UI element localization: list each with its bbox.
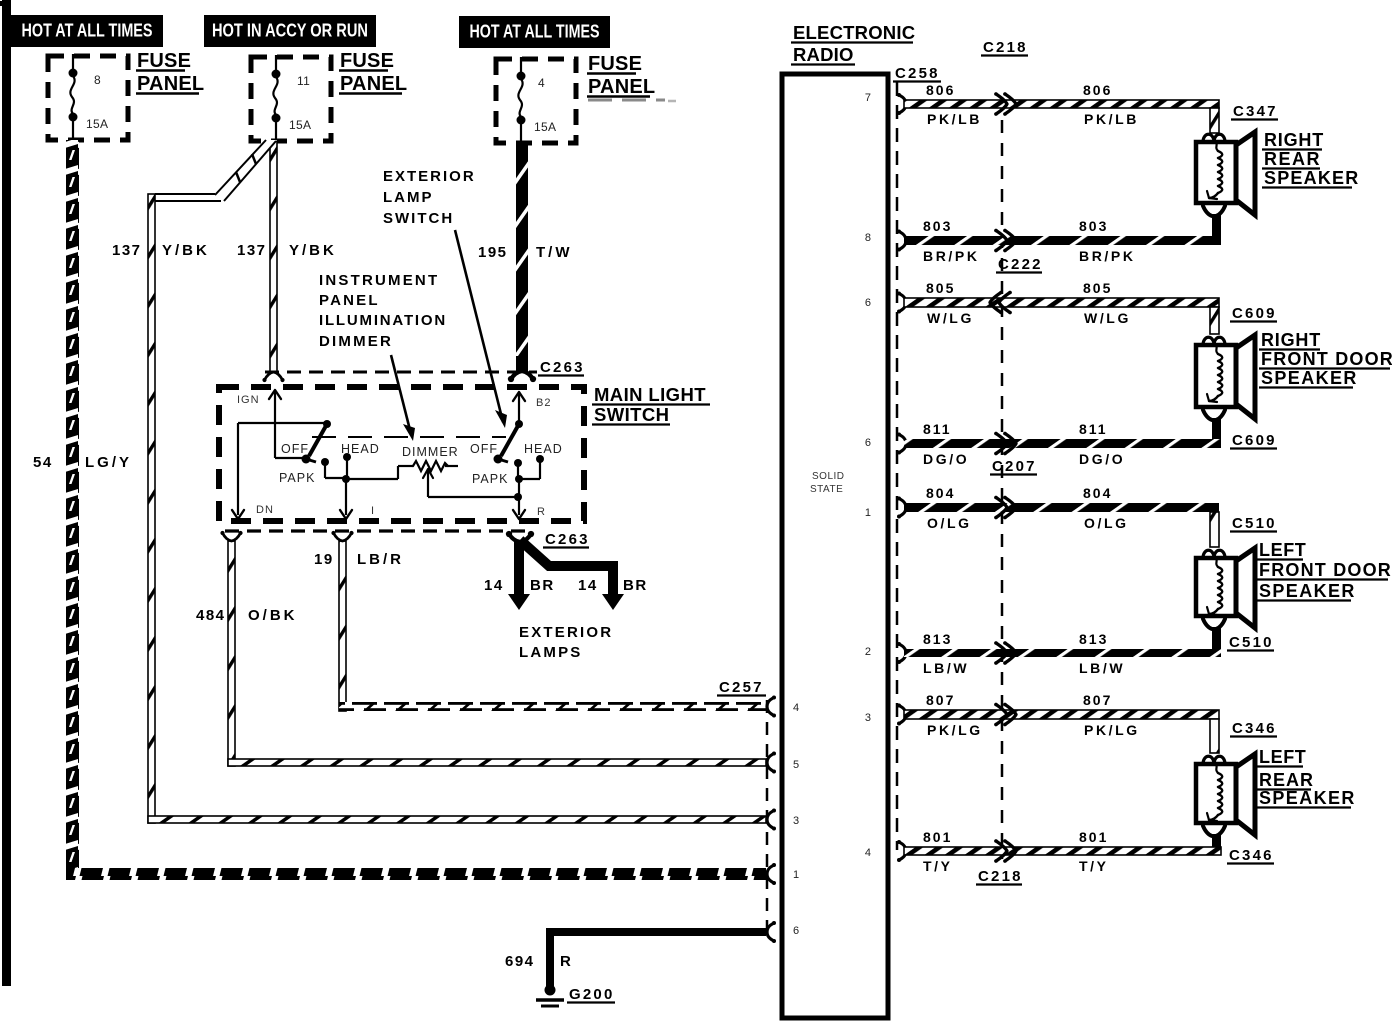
svg-text:54: 54 — [33, 454, 53, 471]
svg-text:T/W: T/W — [536, 244, 573, 261]
svg-text:BR/PK: BR/PK — [923, 248, 980, 264]
svg-text:11: 11 — [297, 74, 310, 88]
svg-text:STATE: STATE — [810, 484, 843, 495]
svg-text:14: 14 — [578, 577, 598, 594]
svg-text:SPEAKER: SPEAKER — [1259, 581, 1356, 601]
svg-text:811: 811 — [1079, 421, 1108, 437]
svg-text:LAMPS: LAMPS — [519, 644, 583, 661]
svg-text:807: 807 — [1083, 692, 1112, 708]
svg-text:PK/LG: PK/LG — [927, 722, 983, 738]
svg-text:LB/W: LB/W — [1079, 660, 1125, 676]
svg-text:EXTERIOR: EXTERIOR — [383, 168, 476, 185]
svg-text:ELECTRONIC: ELECTRONIC — [793, 22, 915, 43]
svg-text:8: 8 — [94, 73, 101, 87]
svg-text:PAPK: PAPK — [472, 472, 508, 486]
svg-text:LB/W: LB/W — [923, 660, 969, 676]
svg-text:DIMMER: DIMMER — [319, 333, 393, 350]
svg-text:801: 801 — [923, 829, 952, 845]
svg-text:FRONT DOOR: FRONT DOOR — [1261, 349, 1392, 369]
svg-text:801: 801 — [1079, 829, 1108, 845]
svg-text:14: 14 — [484, 577, 504, 594]
svg-text:6: 6 — [793, 925, 799, 937]
svg-text:R: R — [537, 506, 546, 518]
svg-text:4: 4 — [538, 76, 545, 90]
svg-text:3: 3 — [793, 815, 799, 827]
svg-text:137: 137 — [112, 242, 142, 259]
svg-text:RADIO: RADIO — [793, 44, 854, 65]
svg-text:O/LG: O/LG — [927, 515, 972, 531]
svg-text:W/LG: W/LG — [1084, 310, 1131, 326]
svg-text:C263: C263 — [545, 531, 590, 548]
svg-text:INSTRUMENT: INSTRUMENT — [319, 272, 439, 289]
svg-text:FRONT DOOR: FRONT DOOR — [1259, 560, 1392, 580]
svg-text:SOLID: SOLID — [812, 471, 845, 482]
svg-text:811: 811 — [923, 421, 952, 437]
svg-text:C257: C257 — [719, 679, 764, 696]
svg-text:W/LG: W/LG — [927, 310, 974, 326]
svg-text:LEFT: LEFT — [1259, 540, 1306, 560]
svg-text:DG/O: DG/O — [1079, 451, 1125, 467]
svg-text:C347: C347 — [1233, 103, 1278, 120]
svg-text:C609: C609 — [1232, 432, 1277, 449]
svg-text:FUSE: FUSE — [340, 50, 394, 72]
svg-text:R: R — [560, 953, 572, 970]
svg-text:195: 195 — [478, 244, 508, 261]
svg-text:O/BK: O/BK — [248, 607, 298, 624]
svg-text:C207: C207 — [992, 458, 1037, 475]
svg-text:C609: C609 — [1232, 305, 1277, 322]
svg-text:8: 8 — [865, 232, 871, 244]
svg-text:HOT IN ACCY OR RUN: HOT IN ACCY OR RUN — [212, 21, 368, 41]
svg-text:6: 6 — [865, 297, 871, 309]
svg-text:IGN: IGN — [237, 394, 260, 406]
svg-text:6: 6 — [865, 437, 871, 449]
svg-text:SPEAKER: SPEAKER — [1264, 168, 1359, 188]
svg-text:803: 803 — [1079, 218, 1108, 234]
svg-text:C263: C263 — [540, 359, 585, 376]
svg-text:C218: C218 — [983, 39, 1028, 56]
svg-text:PK/LG: PK/LG — [1084, 722, 1140, 738]
svg-text:4: 4 — [793, 702, 799, 714]
svg-text:DN: DN — [256, 504, 274, 516]
svg-text:HOT AT ALL TIMES: HOT AT ALL TIMES — [470, 22, 600, 42]
svg-text:BR: BR — [530, 577, 555, 594]
svg-text:OFF: OFF — [470, 442, 498, 456]
svg-text:FUSE: FUSE — [137, 50, 191, 72]
svg-text:1: 1 — [793, 869, 799, 881]
svg-text:HEAD: HEAD — [524, 442, 563, 456]
svg-text:T/Y: T/Y — [1079, 858, 1109, 874]
svg-text:LB/R: LB/R — [357, 551, 404, 568]
svg-text:15A: 15A — [534, 120, 556, 134]
svg-text:LAMP: LAMP — [383, 189, 434, 206]
svg-text:Y/BK: Y/BK — [162, 242, 210, 259]
svg-text:SPEAKER: SPEAKER — [1261, 368, 1358, 388]
svg-text:C510: C510 — [1232, 515, 1277, 532]
svg-text:LG/Y: LG/Y — [85, 454, 132, 471]
svg-text:O/LG: O/LG — [1084, 515, 1129, 531]
svg-text:807: 807 — [926, 692, 955, 708]
svg-text:LEFT: LEFT — [1259, 747, 1306, 767]
svg-text:804: 804 — [1083, 485, 1112, 501]
svg-text:3: 3 — [865, 712, 871, 724]
svg-text:RIGHT: RIGHT — [1261, 330, 1321, 350]
svg-text:MAIN LIGHT: MAIN LIGHT — [594, 384, 706, 405]
svg-text:FUSE: FUSE — [588, 53, 642, 75]
svg-text:REAR: REAR — [1259, 770, 1314, 790]
svg-text:HOT AT ALL TIMES: HOT AT ALL TIMES — [22, 21, 153, 41]
svg-text:804: 804 — [926, 485, 955, 501]
svg-text:REAR: REAR — [1264, 149, 1321, 169]
svg-text:OFF: OFF — [281, 442, 309, 456]
svg-text:805: 805 — [1083, 280, 1112, 296]
svg-text:C346: C346 — [1229, 847, 1274, 864]
svg-text:BR: BR — [623, 577, 648, 594]
svg-text:137: 137 — [237, 242, 267, 259]
svg-text:DG/O: DG/O — [923, 451, 969, 467]
svg-text:PANEL: PANEL — [588, 76, 655, 98]
svg-text:813: 813 — [923, 631, 952, 647]
svg-text:PAPK: PAPK — [279, 471, 315, 485]
svg-text:ILLUMINATION: ILLUMINATION — [319, 312, 447, 329]
svg-text:C510: C510 — [1229, 634, 1274, 651]
svg-text:Y/BK: Y/BK — [289, 242, 337, 259]
svg-text:T/Y: T/Y — [923, 858, 953, 874]
svg-text:694: 694 — [505, 953, 535, 970]
svg-text:RIGHT: RIGHT — [1264, 130, 1324, 150]
svg-text:HEAD: HEAD — [341, 442, 380, 456]
svg-text:15A: 15A — [289, 118, 311, 132]
svg-text:C222: C222 — [998, 256, 1043, 273]
svg-text:EXTERIOR: EXTERIOR — [519, 624, 613, 641]
svg-text:C218: C218 — [978, 868, 1023, 885]
svg-text:DIMMER: DIMMER — [402, 445, 459, 459]
svg-text:5: 5 — [793, 759, 799, 771]
svg-text:484: 484 — [196, 607, 226, 624]
svg-text:PK/LB: PK/LB — [927, 111, 982, 127]
svg-text:BR/PK: BR/PK — [1079, 248, 1136, 264]
svg-text:7: 7 — [865, 92, 871, 104]
svg-text:C258: C258 — [895, 65, 940, 82]
svg-text:PANEL: PANEL — [340, 73, 407, 95]
svg-text:I: I — [371, 505, 375, 517]
svg-text:B2: B2 — [536, 397, 551, 409]
svg-text:803: 803 — [923, 218, 952, 234]
svg-text:SWITCH: SWITCH — [594, 404, 669, 425]
svg-text:15A: 15A — [86, 117, 108, 131]
svg-text:4: 4 — [865, 847, 871, 859]
svg-text:SPEAKER: SPEAKER — [1259, 788, 1356, 808]
svg-text:806: 806 — [926, 82, 955, 98]
svg-text:G200: G200 — [569, 986, 615, 1003]
svg-text:SWITCH: SWITCH — [383, 210, 454, 227]
svg-text:PANEL: PANEL — [137, 73, 204, 95]
svg-text:PANEL: PANEL — [319, 292, 380, 309]
svg-text:813: 813 — [1079, 631, 1108, 647]
svg-text:805: 805 — [926, 280, 955, 296]
svg-text:2: 2 — [865, 646, 871, 658]
svg-text:19: 19 — [314, 551, 334, 568]
svg-text:806: 806 — [1083, 82, 1112, 98]
svg-text:C346: C346 — [1232, 720, 1277, 737]
svg-text:PK/LB: PK/LB — [1084, 111, 1139, 127]
svg-text:1: 1 — [865, 507, 871, 519]
